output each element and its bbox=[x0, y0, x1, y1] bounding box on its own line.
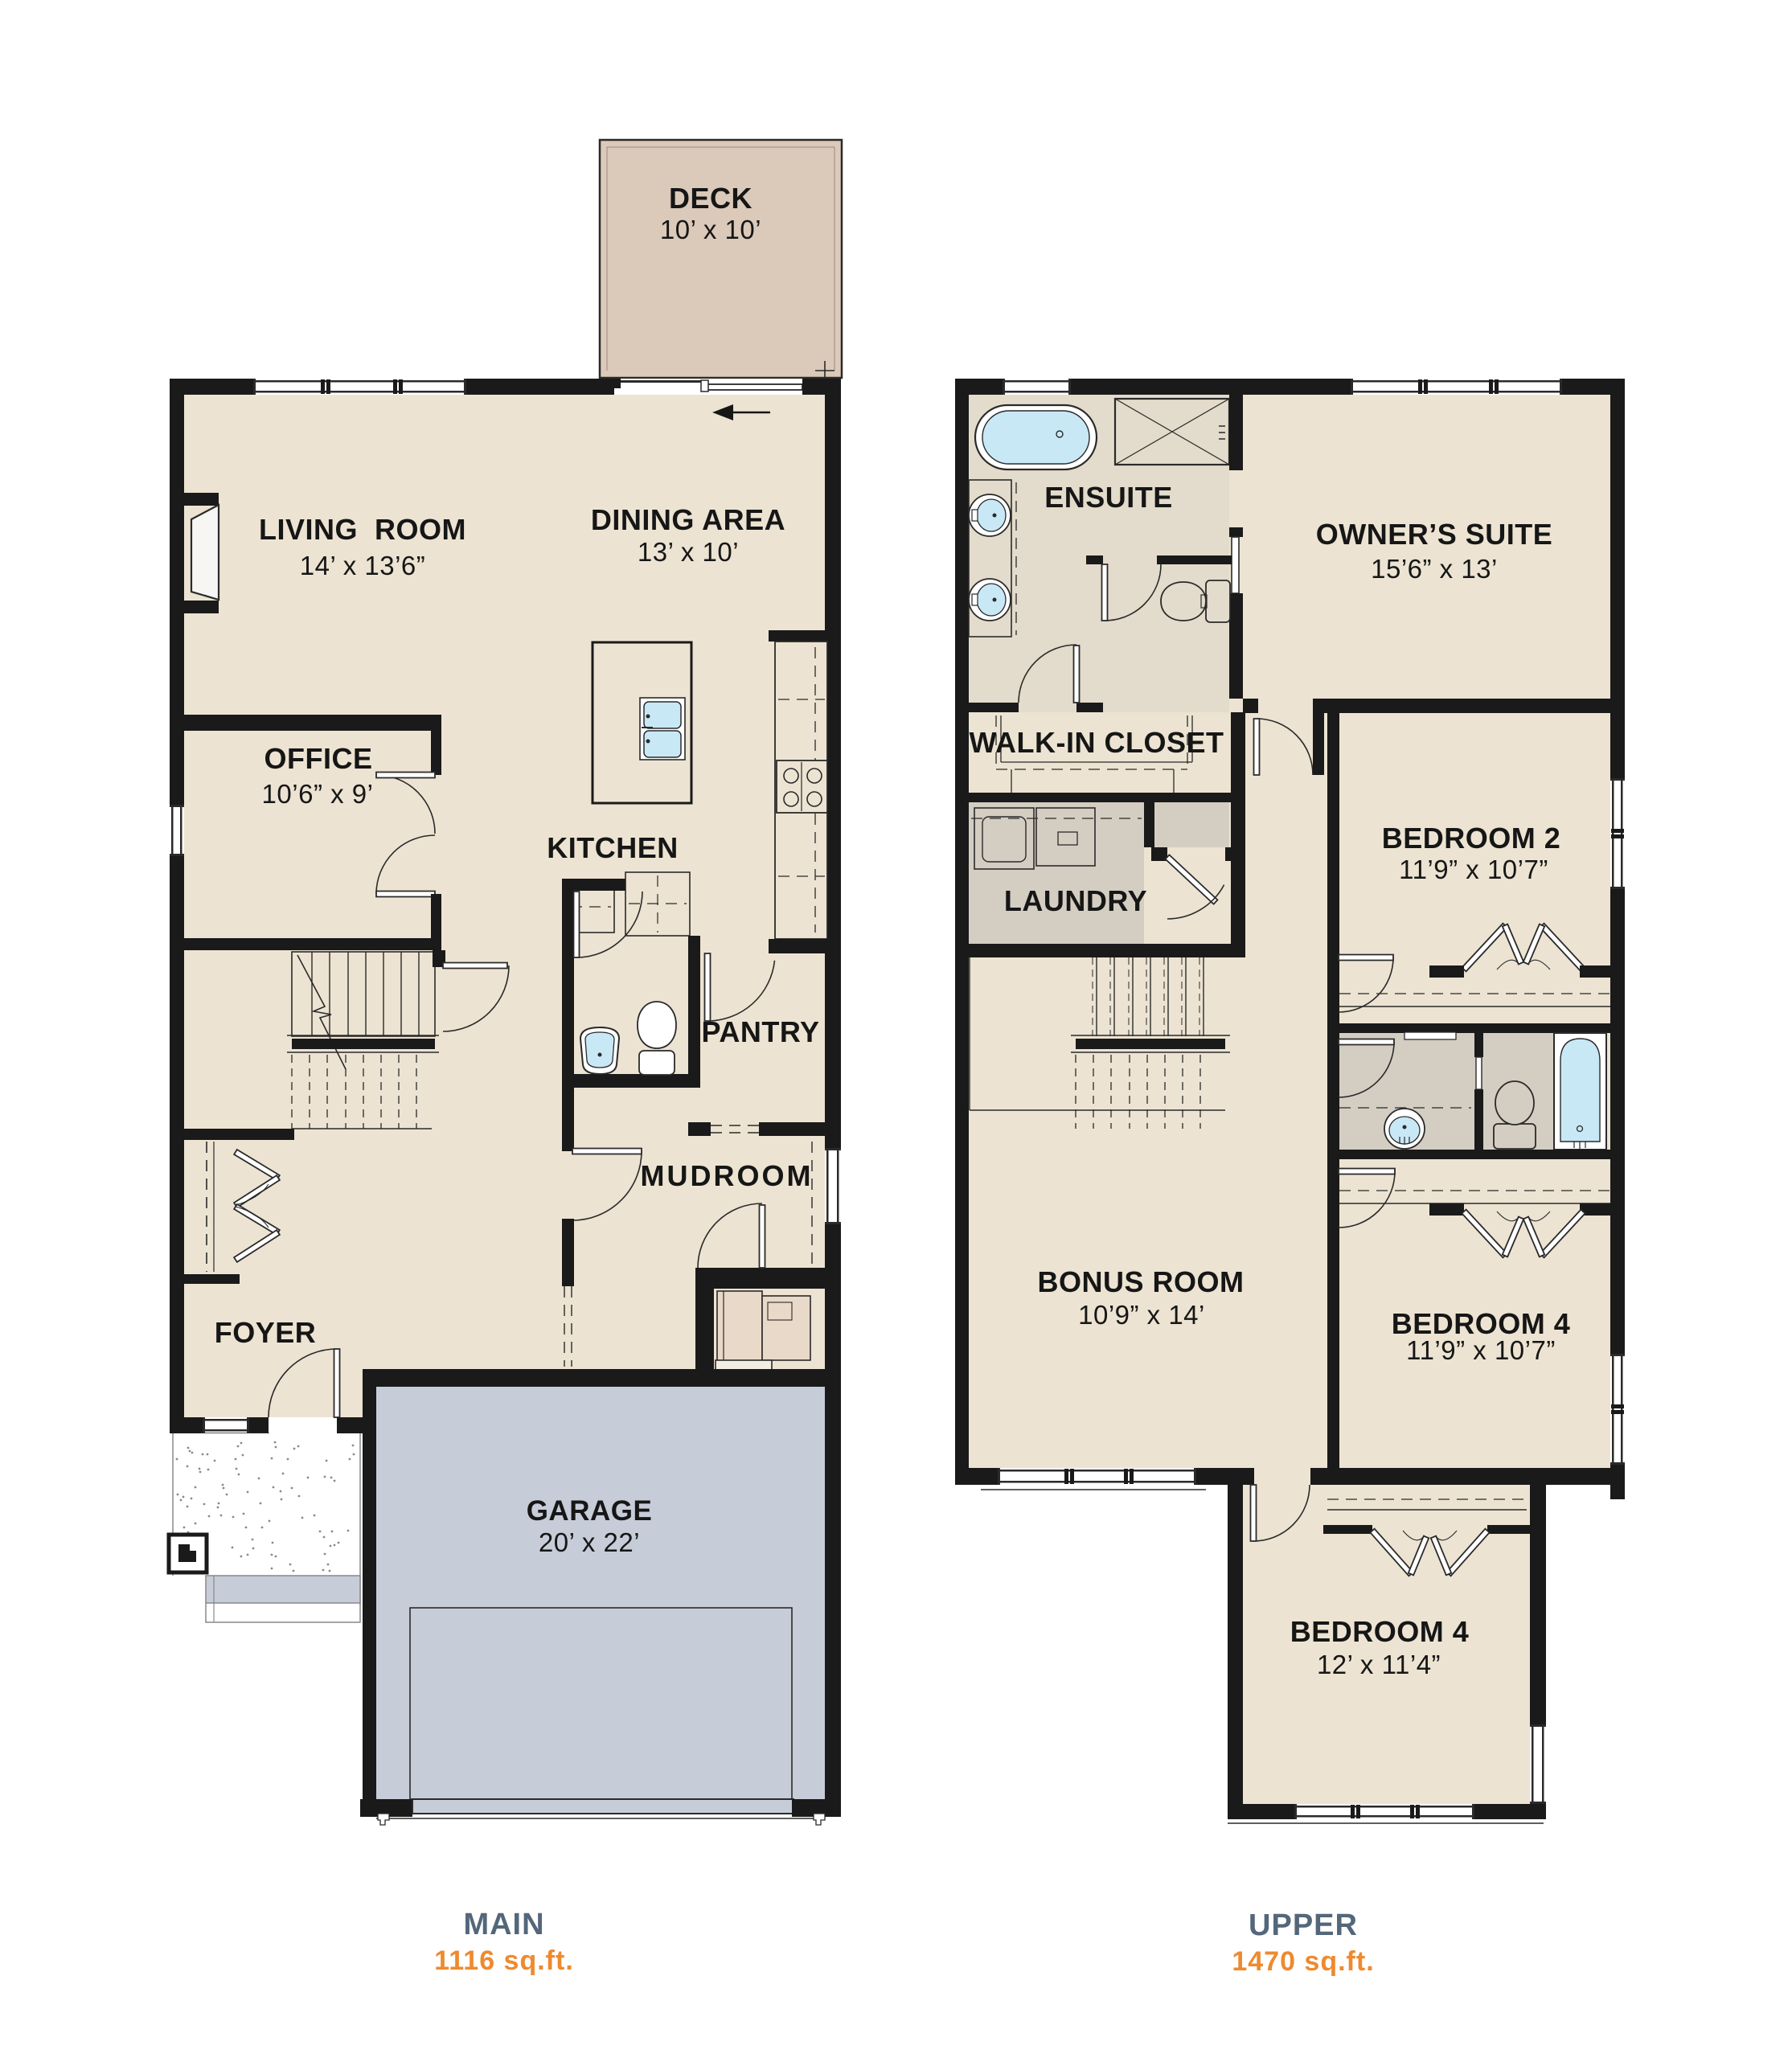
svg-text:1116 sq.ft.: 1116 sq.ft. bbox=[434, 1945, 574, 1976]
svg-text:ENSUITE: ENSUITE bbox=[1044, 481, 1173, 514]
svg-text:10’ x 10’: 10’ x 10’ bbox=[660, 215, 761, 244]
svg-text:1470 sq.ft.: 1470 sq.ft. bbox=[1232, 1946, 1374, 1977]
svg-text:GARAGE: GARAGE bbox=[527, 1495, 653, 1527]
svg-text:10’9” x 14’: 10’9” x 14’ bbox=[1078, 1300, 1205, 1330]
svg-text:11’9” x 10’7”: 11’9” x 10’7” bbox=[1406, 1335, 1556, 1365]
svg-text:MUDROOM: MUDROOM bbox=[641, 1159, 814, 1192]
svg-text:WALK-IN CLOSET: WALK-IN CLOSET bbox=[970, 726, 1224, 759]
svg-text:KITCHEN: KITCHEN bbox=[547, 831, 679, 864]
svg-text:MAIN: MAIN bbox=[463, 1908, 544, 1941]
svg-text:FOYER: FOYER bbox=[215, 1316, 317, 1349]
svg-text:20’ x 22’: 20’ x 22’ bbox=[539, 1527, 640, 1557]
svg-text:DINING AREA: DINING AREA bbox=[591, 503, 785, 536]
svg-text:10’6” x 9’: 10’6” x 9’ bbox=[262, 779, 374, 809]
svg-text:LIVING ROOM: LIVING ROOM bbox=[259, 513, 466, 546]
svg-text:12’ x 11’4”: 12’ x 11’4” bbox=[1317, 1650, 1441, 1679]
svg-text:UPPER: UPPER bbox=[1249, 1908, 1358, 1942]
svg-text:OWNER’S SUITE: OWNER’S SUITE bbox=[1316, 518, 1553, 551]
svg-text:PANTRY: PANTRY bbox=[702, 1015, 820, 1048]
svg-text:11’9” x 10’7”: 11’9” x 10’7” bbox=[1399, 855, 1548, 884]
svg-text:14’ x 13’6”: 14’ x 13’6” bbox=[300, 551, 426, 580]
svg-text:15’6” x 13’: 15’6” x 13’ bbox=[1371, 554, 1498, 584]
svg-text:BEDROOM 4: BEDROOM 4 bbox=[1290, 1615, 1470, 1648]
svg-text:BONUS ROOM: BONUS ROOM bbox=[1038, 1265, 1245, 1298]
svg-text:OFFICE: OFFICE bbox=[264, 742, 373, 775]
svg-text:BEDROOM 2: BEDROOM 2 bbox=[1382, 822, 1561, 855]
svg-text:DECK: DECK bbox=[669, 182, 752, 215]
svg-text:LAUNDRY: LAUNDRY bbox=[1004, 884, 1147, 917]
svg-text:13’ x 10’: 13’ x 10’ bbox=[638, 537, 739, 567]
